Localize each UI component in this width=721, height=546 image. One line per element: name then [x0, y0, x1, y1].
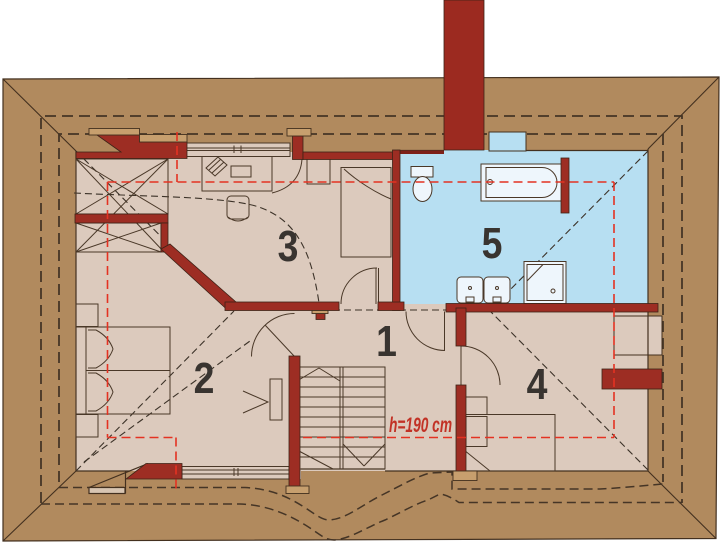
- svg-text:4: 4: [527, 359, 548, 409]
- svg-text:3: 3: [278, 221, 299, 271]
- svg-text:5: 5: [482, 218, 503, 268]
- svg-text:2: 2: [194, 353, 215, 403]
- svg-text:h=190 cm: h=190 cm: [389, 413, 452, 437]
- svg-text:1: 1: [376, 316, 397, 366]
